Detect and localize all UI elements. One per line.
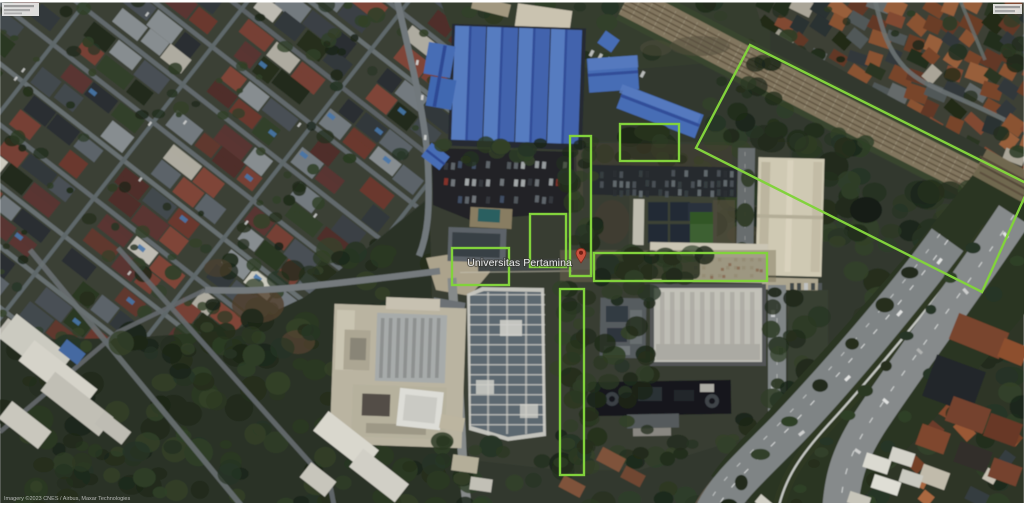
svg-text:Universitas Pertamina: Universitas Pertamina bbox=[467, 257, 572, 269]
svg-text:Imagery ©2023 CNES / Airbus, M: Imagery ©2023 CNES / Airbus, Maxar Techn… bbox=[4, 495, 130, 502]
